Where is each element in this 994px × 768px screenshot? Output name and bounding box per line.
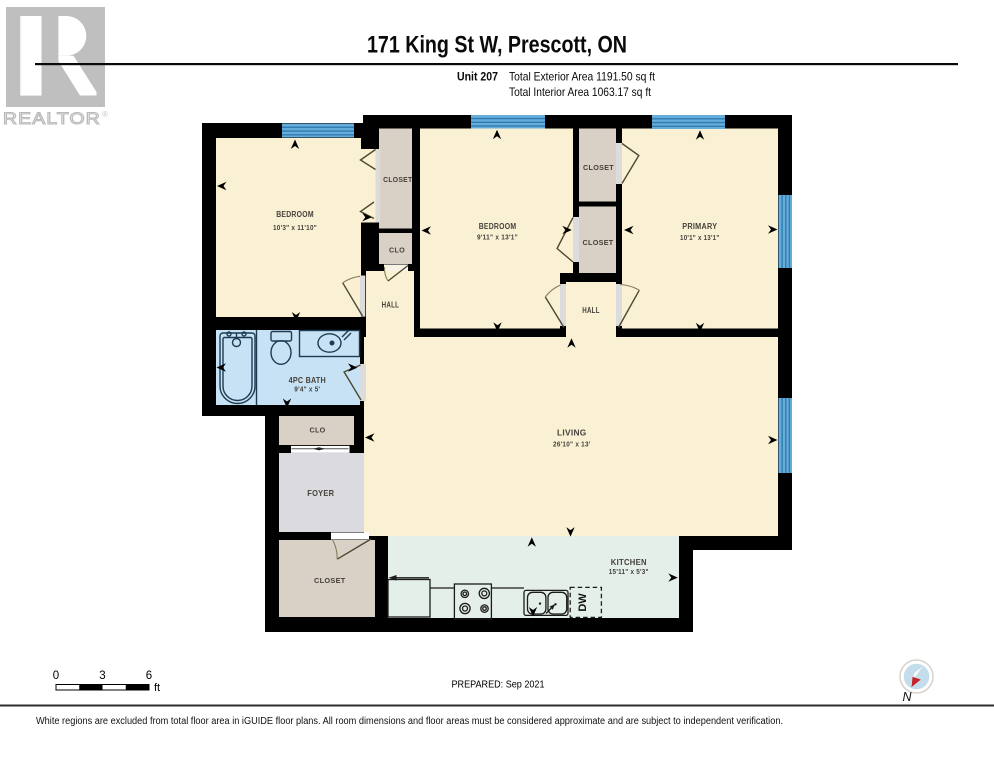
svg-text:15'11" x 5'3": 15'11" x 5'3" — [609, 567, 649, 576]
svg-text:6: 6 — [146, 670, 152, 682]
svg-text:4PC BATH: 4PC BATH — [289, 375, 326, 385]
svg-text:DW: DW — [577, 593, 589, 612]
svg-text:CLOSET: CLOSET — [583, 163, 614, 172]
svg-text:REALTOR: REALTOR — [3, 110, 101, 128]
svg-text:9'4" x 5': 9'4" x 5' — [294, 384, 320, 393]
svg-text:®: ® — [102, 110, 108, 119]
svg-text:9'11" x 13'1": 9'11" x 13'1" — [477, 232, 518, 241]
svg-text:171 King St W, Prescott, ON: 171 King St W, Prescott, ON — [367, 33, 627, 59]
svg-text:PREPARED: Sep 2021: PREPARED: Sep 2021 — [452, 679, 545, 691]
svg-text:HALL: HALL — [382, 300, 400, 309]
svg-text:KITCHEN: KITCHEN — [611, 557, 647, 567]
svg-text:Total Exterior Area 1191.50 sq: Total Exterior Area 1191.50 sq ft — [509, 70, 656, 84]
svg-text:Unit 207: Unit 207 — [457, 70, 498, 84]
svg-text:FOYER: FOYER — [307, 488, 334, 498]
svg-text:PRIMARY: PRIMARY — [682, 221, 717, 231]
svg-text:BEDROOM: BEDROOM — [479, 221, 517, 231]
svg-text:ft: ft — [154, 682, 160, 694]
svg-text:LIVING: LIVING — [557, 427, 587, 437]
svg-text:HALL: HALL — [582, 306, 600, 315]
svg-text:0: 0 — [53, 670, 59, 682]
svg-text:10'3" x 11'10": 10'3" x 11'10" — [273, 223, 317, 232]
svg-text:N: N — [902, 690, 912, 704]
svg-text:CLO: CLO — [389, 245, 405, 254]
svg-text:26'10" x 13': 26'10" x 13' — [553, 439, 591, 448]
svg-text:CLOSET: CLOSET — [314, 576, 346, 585]
svg-text:Total Interior Area 1063.17 sq: Total Interior Area 1063.17 sq ft — [509, 85, 652, 99]
svg-text:CLOSET: CLOSET — [383, 175, 412, 184]
svg-text:10'1" x 13'1": 10'1" x 13'1" — [680, 233, 720, 242]
svg-text:3: 3 — [99, 670, 105, 682]
svg-text:White regions are excluded fro: White regions are excluded from total fl… — [36, 716, 783, 727]
svg-text:BEDROOM: BEDROOM — [276, 209, 314, 219]
svg-text:CLOSET: CLOSET — [583, 238, 614, 247]
svg-text:CLO: CLO — [310, 425, 326, 434]
